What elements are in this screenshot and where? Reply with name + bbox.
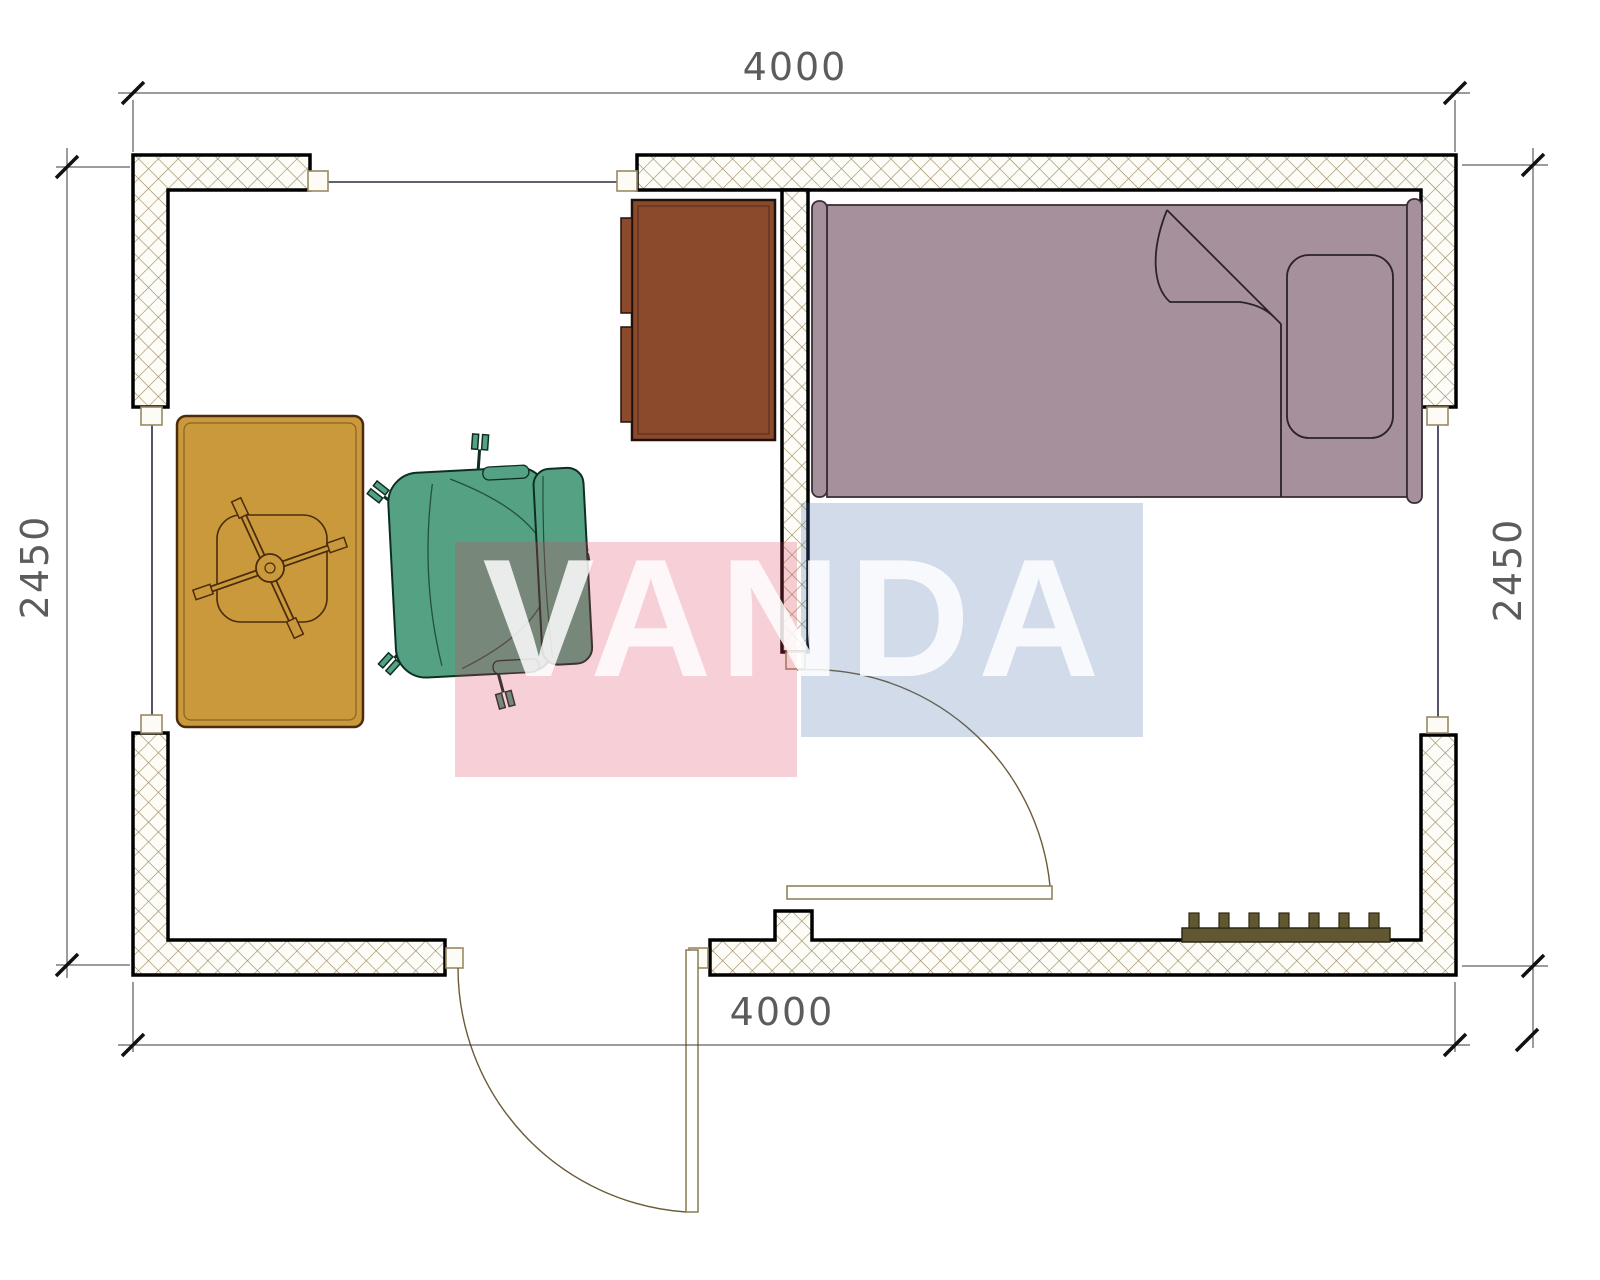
door-swing-arc [458,968,686,1212]
dresser-door-left-top [621,218,632,313]
pedestal-table [177,416,363,727]
dimension-left: 2450 [13,148,130,978]
pillow [1287,255,1393,438]
window-jamb [617,171,637,191]
dresser-body [632,200,775,440]
bed-footboard [812,201,827,497]
floor-plan-drawing: 4000 4000 2450 2450 [0,0,1600,1280]
radiator [1182,913,1390,942]
window-jamb [308,171,328,191]
dresser-door-left-bottom [621,327,632,422]
dresser [621,200,775,440]
chair-armrest-top [483,465,530,480]
bed-headboard [1407,199,1422,503]
radiator-bar [1182,928,1390,942]
dimension-bottom: 4000 [118,982,1470,1056]
dim-label-right: 2450 [1486,518,1530,623]
window-jamb [141,715,162,733]
window-jamb [1427,407,1448,425]
wall-bottom-left [133,733,445,975]
dim-label-top: 4000 [743,45,848,89]
watermark: VANDA [455,503,1143,777]
wall-top-left [133,155,310,407]
door-leaf [686,950,698,1212]
radiator-fins [1189,913,1379,928]
dim-label-left: 2450 [13,515,57,620]
dim-label-bottom: 4000 [730,990,835,1034]
watermark-text: VANDA [483,524,1108,712]
window-jamb [1427,717,1448,733]
door-jamb [446,948,463,968]
door-leaf [787,886,1052,899]
dim-tick [1516,1029,1538,1051]
window-right [1427,407,1448,733]
dimension-right: 2450 [1462,148,1548,1051]
window-jamb [141,407,162,425]
window-left [141,407,162,733]
door-exterior [446,948,708,1212]
bed [812,199,1422,503]
dimension-top: 4000 [118,45,1470,152]
window-top [308,171,637,191]
floor-plan-canvas: 4000 4000 2450 2450 [0,0,1600,1280]
